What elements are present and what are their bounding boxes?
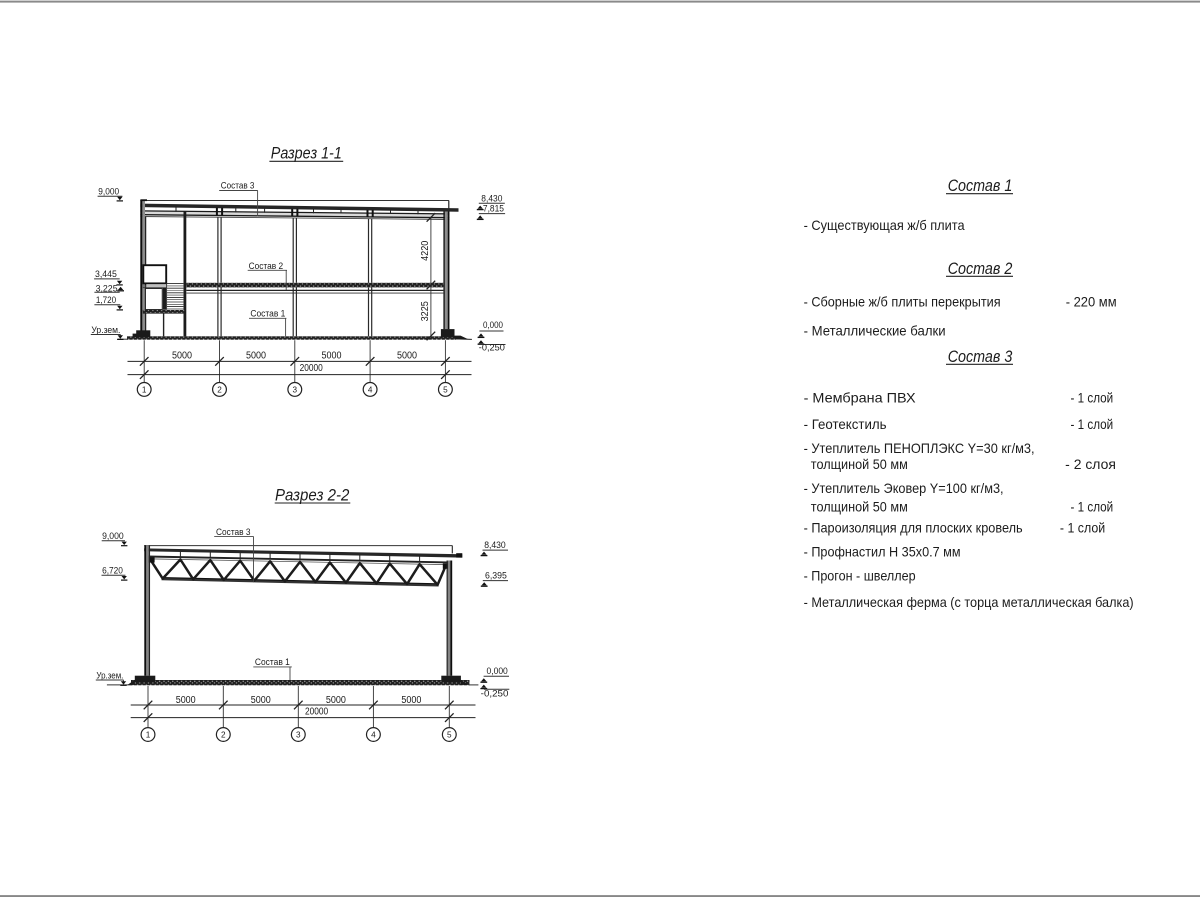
svg-text:Состав 3: Состав 3 xyxy=(216,527,251,537)
svg-text:0,000: 0,000 xyxy=(487,665,508,676)
svg-text:- 1 слой: - 1 слой xyxy=(1071,417,1114,432)
svg-text:5000: 5000 xyxy=(326,695,347,706)
svg-text:Состав 3: Состав 3 xyxy=(948,348,1013,366)
svg-text:4220: 4220 xyxy=(420,240,431,261)
svg-text:Разрез 1-1: Разрез 1-1 xyxy=(271,145,342,163)
svg-text:- 1 слой: - 1 слой xyxy=(1071,499,1114,514)
svg-text:Ур.зем.: Ур.зем. xyxy=(91,324,120,335)
svg-text:1: 1 xyxy=(146,730,151,739)
svg-text:8,430: 8,430 xyxy=(484,539,506,550)
svg-text:5000: 5000 xyxy=(246,351,267,362)
svg-text:- 1 слой: - 1 слой xyxy=(1060,520,1105,535)
svg-text:5000: 5000 xyxy=(322,351,343,362)
svg-text:3: 3 xyxy=(293,385,298,394)
svg-text:9,000: 9,000 xyxy=(98,186,119,197)
svg-text:толщиной 50 мм: толщиной 50 мм xyxy=(811,499,908,514)
svg-text:5: 5 xyxy=(443,385,448,394)
svg-text:- Металлические балки: - Металлические балки xyxy=(804,324,946,339)
svg-text:- 220 мм: - 220 мм xyxy=(1066,294,1117,309)
svg-text:7,815: 7,815 xyxy=(483,203,504,214)
svg-text:1: 1 xyxy=(142,385,147,394)
svg-text:-0,250: -0,250 xyxy=(479,341,505,352)
svg-text:толщиной 50 мм: толщиной 50 мм xyxy=(811,457,908,472)
svg-text:Состав 2: Состав 2 xyxy=(249,261,284,271)
svg-text:4: 4 xyxy=(368,385,373,394)
svg-text:- Пароизоляция для плоских кро: - Пароизоляция для плоских кровель xyxy=(804,520,1023,535)
svg-text:6,395: 6,395 xyxy=(485,570,507,581)
svg-text:- Геотекстиль: - Геотекстиль xyxy=(804,417,887,432)
svg-text:2: 2 xyxy=(217,385,222,394)
svg-text:20000: 20000 xyxy=(305,707,329,718)
svg-text:Состав 1: Состав 1 xyxy=(948,177,1013,195)
svg-text:- Сборные ж/б плиты перекрытия: - Сборные ж/б плиты перекрытия xyxy=(804,294,1001,309)
svg-text:Состав 3: Состав 3 xyxy=(221,180,255,190)
svg-text:3,445: 3,445 xyxy=(95,268,117,279)
svg-text:5000: 5000 xyxy=(176,695,197,706)
svg-text:5000: 5000 xyxy=(401,695,422,706)
svg-text:- Прогон - швеллер: - Прогон - швеллер xyxy=(804,568,916,583)
svg-text:Состав 2: Состав 2 xyxy=(948,260,1013,278)
svg-text:1,720: 1,720 xyxy=(96,294,116,305)
svg-text:5000: 5000 xyxy=(172,351,193,362)
svg-text:- 1 слой: - 1 слой xyxy=(1071,390,1114,405)
svg-text:- Утеплитель ПЕНОПЛЭКС Y=30 кг: - Утеплитель ПЕНОПЛЭКС Y=30 кг/м3, xyxy=(804,441,1035,456)
svg-text:Ур.зем.: Ур.зем. xyxy=(96,669,123,680)
svg-text:9,000: 9,000 xyxy=(102,530,124,541)
svg-text:3,225: 3,225 xyxy=(96,282,118,293)
svg-text:- Профнастил Н 35х0.7 мм: - Профнастил Н 35х0.7 мм xyxy=(804,544,961,559)
svg-text:3: 3 xyxy=(296,730,301,739)
svg-text:5: 5 xyxy=(447,730,452,739)
svg-text:5000: 5000 xyxy=(251,695,272,706)
svg-text:- Утеплитель Эковер Y=100 кг/м: - Утеплитель Эковер Y=100 кг/м3, xyxy=(804,481,1004,496)
svg-text:- Существующая ж/б плита: - Существующая ж/б плита xyxy=(804,218,965,233)
svg-text:0,000: 0,000 xyxy=(483,319,503,330)
svg-text:2: 2 xyxy=(221,730,226,739)
svg-text:- 2 слоя: - 2 слоя xyxy=(1065,457,1116,472)
svg-text:20000: 20000 xyxy=(300,363,324,374)
svg-text:5000: 5000 xyxy=(397,351,418,362)
svg-text:6,720: 6,720 xyxy=(102,565,123,576)
svg-text:Состав 1: Состав 1 xyxy=(250,309,285,319)
svg-text:Состав 1: Состав 1 xyxy=(255,657,290,667)
svg-text:-0,250: -0,250 xyxy=(481,688,509,699)
svg-text:- Металлическая ферма (с торца: - Металлическая ферма (с торца металличе… xyxy=(804,595,1134,610)
svg-text:4: 4 xyxy=(371,730,376,739)
svg-text:3225: 3225 xyxy=(420,301,431,322)
svg-text:Разрез 2-2: Разрез 2-2 xyxy=(275,486,349,504)
svg-text:- Мембрана ПВХ: - Мембрана ПВХ xyxy=(804,390,916,405)
